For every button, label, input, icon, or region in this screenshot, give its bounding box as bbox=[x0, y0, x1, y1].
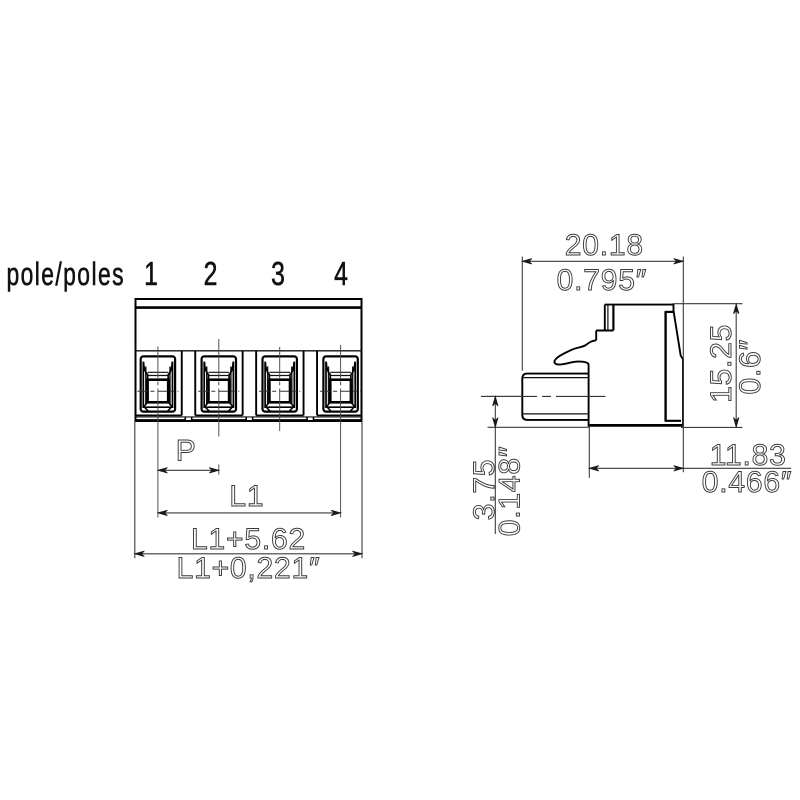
svg-text:0.148″: 0.148″ bbox=[494, 446, 527, 537]
svg-text:0.466″: 0.466″ bbox=[702, 466, 793, 499]
svg-text:4: 4 bbox=[334, 257, 348, 293]
svg-text:L1+0,221″: L1+0,221″ bbox=[177, 552, 321, 585]
svg-text:0.6″: 0.6″ bbox=[734, 339, 767, 395]
svg-text:20.18: 20.18 bbox=[565, 229, 644, 262]
svg-text:1: 1 bbox=[144, 257, 158, 293]
svg-text:pole/poles: pole/poles bbox=[7, 256, 125, 292]
svg-text:P: P bbox=[176, 434, 197, 467]
svg-text:0.795″: 0.795″ bbox=[557, 264, 648, 297]
svg-text:3: 3 bbox=[271, 257, 285, 293]
svg-text:L1: L1 bbox=[229, 480, 264, 513]
svg-text:2: 2 bbox=[204, 257, 218, 293]
